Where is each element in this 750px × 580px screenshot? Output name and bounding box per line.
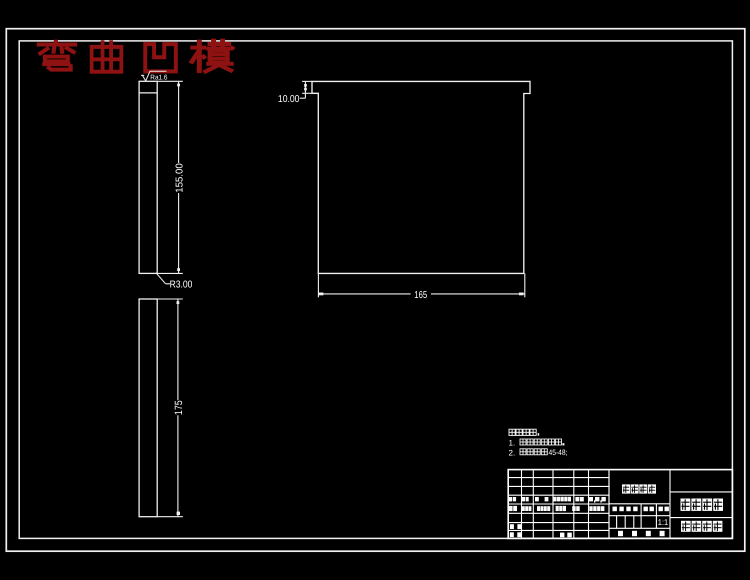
svg-text:1.: 1.	[509, 439, 516, 448]
svg-text:2.: 2.	[509, 448, 516, 457]
svg-text:165: 165	[414, 290, 427, 301]
svg-text:1:1: 1:1	[658, 517, 669, 527]
svg-text:Ra1.6: Ra1.6	[150, 75, 167, 82]
svg-text:R3.00: R3.00	[170, 280, 193, 291]
svg-text:10.00: 10.00	[278, 94, 300, 105]
svg-text:175: 175	[173, 400, 185, 415]
svg-text:155.00: 155.00	[175, 163, 186, 193]
svg-text:45-48;: 45-48;	[549, 448, 568, 457]
